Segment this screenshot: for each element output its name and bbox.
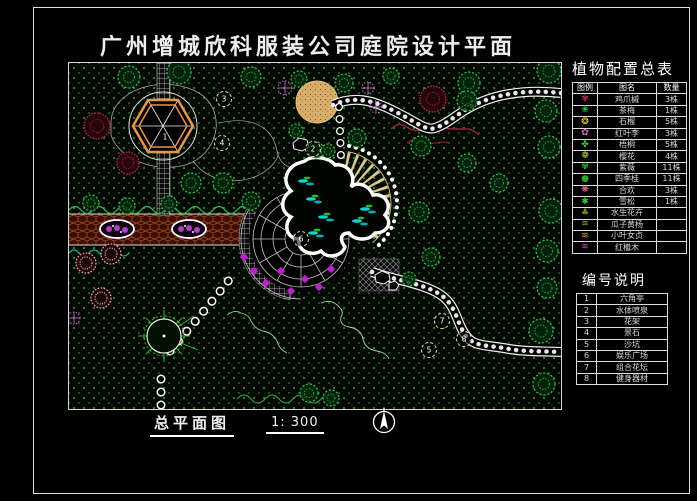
table-row: ❀茶梅1株: [573, 105, 687, 116]
road: [69, 214, 265, 245]
site-plan-canvas: 12345678: [68, 62, 562, 410]
plant-icon: ✱: [581, 198, 589, 207]
table-row: ●四季桂11株: [573, 174, 687, 185]
north-arrow-icon: [372, 406, 396, 436]
table-row: ✾鸡爪槭3株: [573, 94, 687, 105]
table-row: 5沙坑: [577, 339, 668, 350]
plant-icon: ✤: [581, 141, 589, 150]
table-row: ≋红檵木: [573, 242, 687, 253]
drawing-title: 广州增城欣科服装公司庭院设计平面: [100, 29, 516, 61]
svg-text:6: 6: [299, 235, 304, 244]
table-row: ≋瓜子黄杨: [573, 219, 687, 230]
hexagon-pavilion: [129, 92, 197, 160]
cad-sheet: 广州增城欣科服装公司庭院设计平面: [0, 0, 697, 501]
plant-icon: ❋: [581, 186, 589, 195]
svg-text:7: 7: [440, 317, 445, 326]
plant-icon: ≋: [581, 232, 589, 241]
table-row: 2水体喷泉: [577, 305, 668, 316]
table-row: 8健身器材: [577, 373, 668, 384]
plant-table-block: 植物配置总表 图例 图名 数量 ✾鸡爪槭3株 ❀茶梅1株 ❂石榴5株 ✿红叶李3…: [572, 58, 687, 254]
plant-icon: ♣: [581, 209, 589, 218]
table-row: ❋合欢3株: [573, 185, 687, 196]
svg-text:5: 5: [427, 346, 432, 355]
table-row: ✤梧桐5株: [573, 139, 687, 150]
svg-text:8: 8: [462, 335, 467, 344]
plant-icon: ✿: [581, 129, 589, 138]
table-row: 3花架: [577, 316, 668, 327]
plant-table-header: 图例 图名 数量: [573, 83, 687, 94]
plant-icon: ❁: [581, 152, 589, 161]
plant-icon: ❀: [581, 106, 589, 115]
site-plan-drawing: 12345678: [69, 63, 561, 409]
legend-table-title: 编号说明: [582, 270, 668, 290]
plant-icon: ≋: [581, 220, 589, 229]
plant-table-title: 植物配置总表: [572, 58, 687, 79]
table-row: ✱雪松1株: [573, 196, 687, 207]
table-row: 7组合花坛: [577, 362, 668, 373]
svg-text:2: 2: [311, 145, 316, 154]
table-row: ♣水生花卉: [573, 208, 687, 219]
plant-icon: ❂: [581, 118, 589, 127]
svg-text:4: 4: [220, 139, 225, 148]
legend-table: 1六角亭 2水体喷泉 3花架 4景石 5沙坑 6娱乐广场 7组合花坛 8健身器材: [576, 293, 668, 385]
table-row: ≋小叶女贞: [573, 231, 687, 242]
table-row: 4景石: [577, 328, 668, 339]
plant-icon: ●: [581, 175, 589, 184]
plant-icon: ✾: [581, 163, 589, 172]
scale-label: 1: 300: [266, 415, 324, 434]
table-row: 6娱乐广场: [577, 350, 668, 361]
svg-text:3: 3: [222, 95, 227, 104]
legend-table-block: 编号说明 1六角亭 2水体喷泉 3花架 4景石 5沙坑 6娱乐广场 7组合花坛 …: [576, 270, 668, 385]
table-row: 1六角亭: [577, 294, 668, 305]
table-row: ✿红叶李3株: [573, 128, 687, 139]
plant-icon: ✾: [581, 95, 589, 104]
svg-text:1: 1: [163, 133, 168, 142]
table-row: ✾紫薇11株: [573, 162, 687, 173]
plan-caption: 总平面图: [150, 412, 234, 437]
plant-icon: ≋: [581, 243, 589, 252]
table-row: ❁樱花4株: [573, 151, 687, 162]
plant-table: 图例 图名 数量 ✾鸡爪槭3株 ❀茶梅1株 ❂石榴5株 ✿红叶李3株 ✤梧桐5株…: [572, 82, 687, 254]
table-row: ❂石榴5株: [573, 117, 687, 128]
